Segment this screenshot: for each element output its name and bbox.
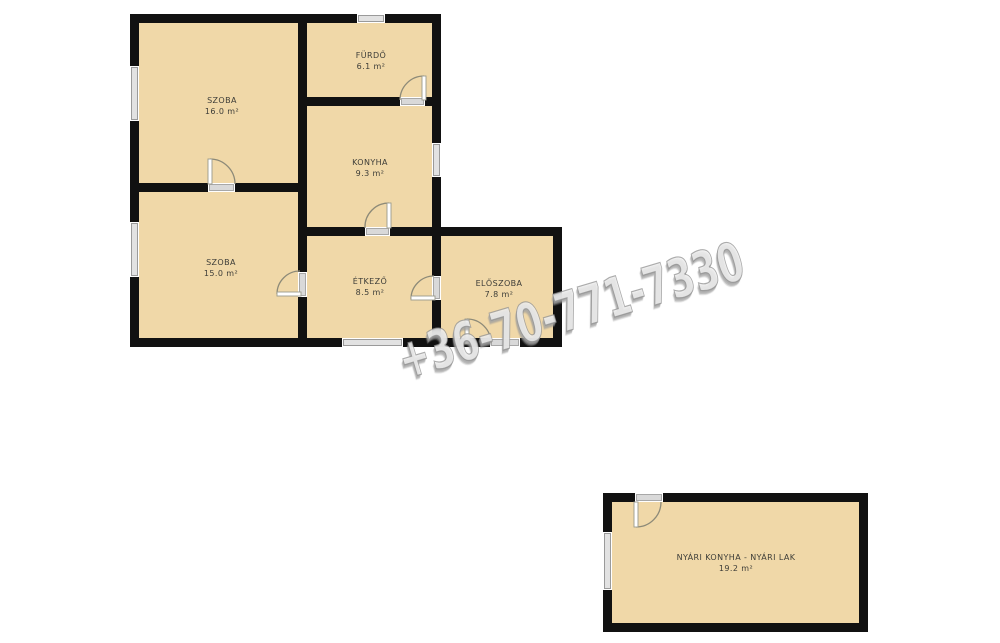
- threshold-pane: [433, 277, 440, 299]
- window: [342, 338, 403, 347]
- door-threshold: [365, 227, 390, 236]
- wall-segment: [603, 623, 868, 632]
- room-area: 19.2 m²: [677, 563, 796, 574]
- wall-segment: [553, 227, 562, 347]
- room-label-szoba-felso: SZOBA 16.0 m²: [205, 95, 239, 117]
- window: [603, 532, 612, 590]
- door-threshold: [432, 276, 441, 300]
- wall-segment: [130, 14, 139, 66]
- window-pane: [343, 339, 402, 346]
- room-area: 7.8 m²: [476, 289, 523, 300]
- wall-segment: [859, 493, 868, 632]
- wall-segment: [130, 277, 139, 347]
- room-area: 15.0 m²: [204, 268, 238, 279]
- window-pane: [433, 144, 440, 176]
- threshold-pane: [491, 339, 519, 346]
- wall-segment: [432, 227, 562, 236]
- room-name: SZOBA: [204, 257, 238, 268]
- door-threshold: [635, 493, 663, 502]
- room-label-konyha: KONYHA 9.3 m²: [352, 157, 388, 179]
- room-label-furdo: FÜRDŐ 6.1 m²: [356, 50, 386, 72]
- threshold-pane: [636, 494, 662, 501]
- wall-segment: [603, 590, 612, 632]
- room-name: ÉTKEZŐ: [353, 276, 387, 287]
- threshold-pane: [209, 184, 234, 191]
- door-threshold: [298, 272, 307, 297]
- room-label-eloszoba: ELŐSZOBA 7.8 m²: [476, 278, 523, 300]
- room-label-nyari-konyha: NYÁRI KONYHA - NYÁRI LAK 19.2 m²: [677, 552, 796, 574]
- room-label-szoba-also: SZOBA 15.0 m²: [204, 257, 238, 279]
- wall-segment: [432, 300, 441, 347]
- window: [130, 222, 139, 277]
- window: [130, 66, 139, 121]
- window: [432, 143, 441, 177]
- threshold-pane: [366, 228, 389, 235]
- threshold-pane: [401, 98, 424, 105]
- room-name: KONYHA: [352, 157, 388, 168]
- room-name: SZOBA: [205, 95, 239, 106]
- door-threshold: [400, 97, 425, 106]
- room-name: ELŐSZOBA: [476, 278, 523, 289]
- floor-plan: SZOBA 16.0 m² FÜRDŐ 6.1 m² KONYHA 9.3 m²…: [0, 0, 1000, 643]
- room-name: NYÁRI KONYHA - NYÁRI LAK: [677, 552, 796, 563]
- wall-segment: [235, 183, 307, 192]
- window: [357, 14, 385, 23]
- wall-segment: [130, 121, 139, 222]
- wall-segment: [603, 493, 612, 532]
- window-pane: [604, 533, 611, 589]
- wall-segment: [298, 97, 400, 106]
- wall-segment: [403, 338, 490, 347]
- wall-segment: [130, 183, 208, 192]
- room-area: 9.3 m²: [352, 168, 388, 179]
- wall-segment: [298, 14, 307, 272]
- window-pane: [131, 223, 138, 276]
- window-pane: [131, 67, 138, 120]
- wall-segment: [298, 297, 307, 347]
- room-area: 6.1 m²: [356, 61, 386, 72]
- window-pane: [358, 15, 384, 22]
- main-building-fill: [130, 14, 441, 347]
- wall-segment: [298, 227, 365, 236]
- threshold-pane: [299, 273, 306, 296]
- door-threshold: [208, 183, 235, 192]
- room-label-etkezo: ÉTKEZŐ 8.5 m²: [353, 276, 387, 298]
- wall-segment: [432, 14, 441, 143]
- room-area: 8.5 m²: [353, 287, 387, 298]
- room-name: FÜRDŐ: [356, 50, 386, 61]
- wall-segment: [130, 338, 342, 347]
- door-threshold: [490, 338, 520, 347]
- wall-segment: [130, 14, 357, 23]
- wall-segment: [432, 177, 441, 276]
- room-area: 16.0 m²: [205, 106, 239, 117]
- wall-segment: [663, 493, 868, 502]
